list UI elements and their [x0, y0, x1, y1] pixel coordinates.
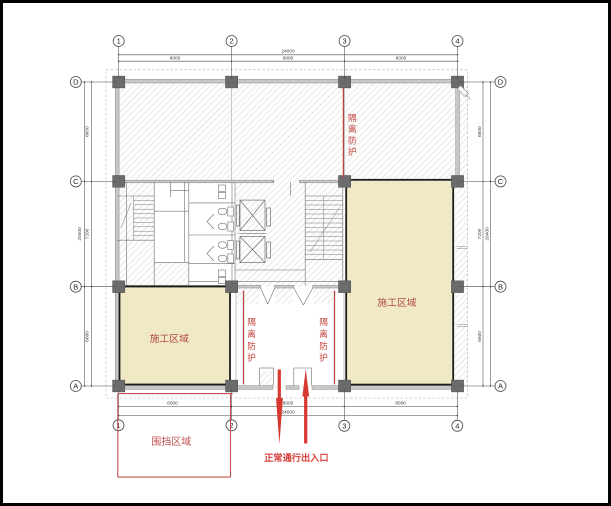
svg-text:C: C — [498, 177, 504, 186]
svg-text:A: A — [498, 382, 503, 391]
svg-text:8000: 8000 — [283, 56, 294, 62]
svg-text:A: A — [73, 382, 78, 391]
svg-text:8000: 8000 — [167, 400, 178, 406]
svg-text:隔离防护: 隔离防护 — [319, 317, 328, 362]
svg-text:隔离防护: 隔离防护 — [247, 317, 256, 362]
svg-text:4: 4 — [455, 422, 459, 431]
svg-text:8000: 8000 — [283, 400, 294, 406]
svg-text:8000: 8000 — [396, 56, 407, 62]
svg-text:施工区域: 施工区域 — [377, 296, 416, 309]
svg-text:6600: 6600 — [84, 331, 90, 342]
svg-text:D: D — [498, 78, 504, 87]
svg-text:6600: 6600 — [477, 126, 483, 137]
svg-text:4: 4 — [455, 37, 459, 46]
svg-text:B: B — [498, 282, 503, 291]
svg-text:7200: 7200 — [477, 228, 483, 239]
svg-text:1: 1 — [116, 421, 120, 430]
svg-text:2: 2 — [230, 37, 234, 46]
svg-text:20400: 20400 — [77, 227, 83, 241]
svg-text:C: C — [73, 177, 79, 186]
svg-text:正常通行出入口: 正常通行出入口 — [264, 452, 328, 463]
svg-text:7200: 7200 — [84, 228, 90, 239]
svg-text:8000: 8000 — [170, 56, 181, 62]
svg-text:3: 3 — [342, 422, 346, 431]
svg-text:24600: 24600 — [281, 409, 295, 415]
svg-text:6600: 6600 — [84, 126, 90, 137]
svg-text:1: 1 — [117, 37, 121, 46]
svg-text:D: D — [73, 78, 79, 87]
svg-text:3: 3 — [343, 37, 347, 46]
svg-text:施工区域: 施工区域 — [150, 332, 189, 345]
svg-text:8000: 8000 — [395, 400, 406, 406]
svg-text:24000: 24000 — [281, 49, 295, 55]
svg-text:围挡区域: 围挡区域 — [151, 435, 191, 448]
svg-text:B: B — [73, 282, 78, 291]
svg-text:20400: 20400 — [485, 227, 491, 241]
svg-text:隔离防护: 隔离防护 — [348, 113, 357, 157]
svg-text:6600: 6600 — [477, 331, 483, 342]
